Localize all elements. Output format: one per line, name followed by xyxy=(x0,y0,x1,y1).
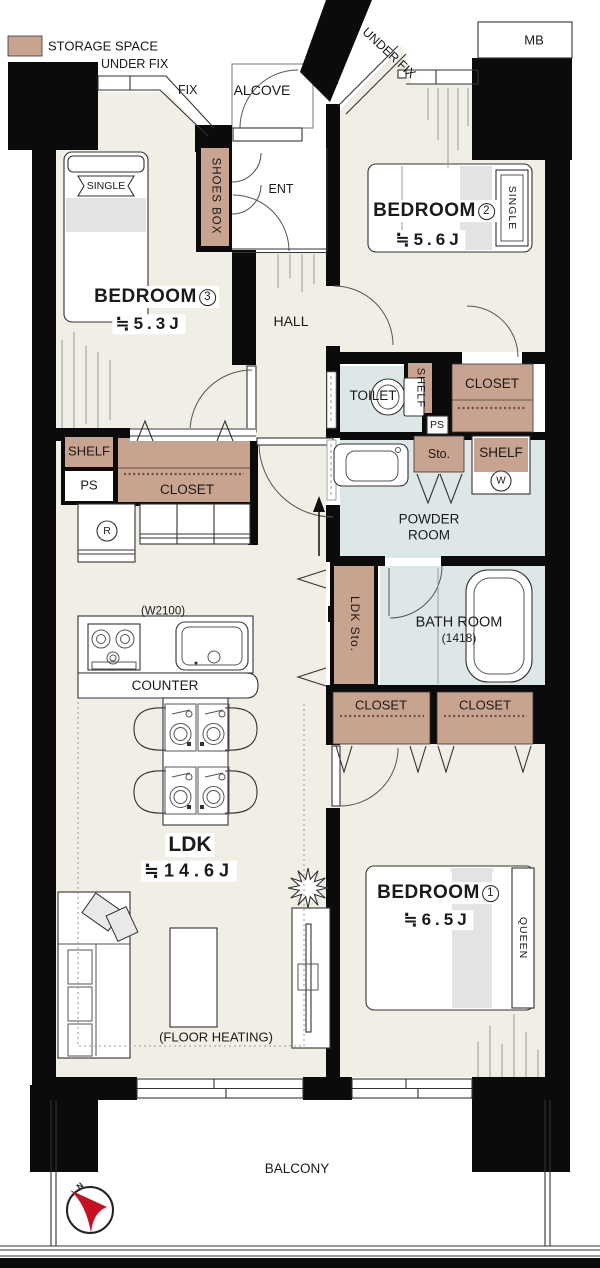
bed3-type-label: SINGLE xyxy=(87,180,126,192)
sto-label: Sto. xyxy=(428,447,450,461)
coffee-table-icon xyxy=(170,928,217,1027)
ps-left-label: PS xyxy=(80,479,97,494)
ldk-size: ≒14.6J xyxy=(141,861,237,882)
alcove-label: ALCOVE xyxy=(234,82,291,98)
ent-label: ENT xyxy=(269,182,294,196)
hall-ldk-door xyxy=(257,438,333,445)
counter-label: COUNTER xyxy=(132,678,199,694)
bedroom3-size: ≒5.3J xyxy=(112,314,185,334)
shoes-box-label: SHOES BOX xyxy=(208,158,221,235)
kitchen-width-label: (W2100) xyxy=(141,605,185,618)
balcony-label: BALCONY xyxy=(265,1161,330,1177)
closet-south-1-label: CLOSET xyxy=(355,699,407,714)
shelf-left-label: SHELF xyxy=(68,445,110,460)
front-door xyxy=(233,128,302,141)
legend-label: STORAGE SPACE xyxy=(48,39,158,54)
fix-label: FIX xyxy=(178,83,197,97)
toilet-label: TOILET xyxy=(349,388,396,404)
washer-label: W xyxy=(496,475,505,487)
toilet-shelf-label: SHELF xyxy=(414,368,427,408)
closet-bedroom2-area xyxy=(452,364,533,432)
floor-plan: STORAGE SPACE UNDER FIX FIX ALCOVE UNDER… xyxy=(0,0,600,1268)
bedroom2-size: ≒5.6J xyxy=(392,230,465,250)
legend-swatch xyxy=(8,36,42,56)
stove-icon xyxy=(88,624,140,670)
laundry-shelf-label: SHELF xyxy=(479,445,523,461)
ldk-name: LDK xyxy=(165,833,214,857)
hall-label: HALL xyxy=(273,313,308,329)
bedroom1-number: 1 xyxy=(482,885,499,902)
bed2-type-label: SINGLE xyxy=(506,186,518,231)
closet-bedroom2-label: CLOSET xyxy=(465,376,519,392)
bath-room-label: BATH ROOM xyxy=(416,615,503,632)
bedroom2-number: 2 xyxy=(478,203,495,220)
bath-size-label: (1418) xyxy=(442,632,477,646)
powder-room-label: POWDER ROOM xyxy=(387,511,471,542)
ldk-sto-label: LDK Sto. xyxy=(347,596,361,652)
bedroom3-door xyxy=(247,366,256,432)
under-fix-left-label: UNDER FIX xyxy=(101,57,168,71)
vanity-icon xyxy=(334,444,408,486)
floor-heating-label: (FLOOR HEATING) xyxy=(159,1031,273,1046)
bedroom3-number: 3 xyxy=(199,289,216,306)
closet-left-label: CLOSET xyxy=(160,482,214,498)
bed1-type-label: QUEEN xyxy=(517,917,529,959)
bedroom2-name: BEDROOM2 xyxy=(370,200,498,222)
toilet-ps-label: PS xyxy=(430,419,444,431)
bedroom1-name: BEDROOM1 xyxy=(374,882,502,904)
closet-south-2-label: CLOSET xyxy=(459,699,511,714)
tv-icon xyxy=(306,924,311,1032)
mb-label: MB xyxy=(524,34,544,49)
bedroom1-size: ≒6.5J xyxy=(400,910,473,930)
fridge-label: R xyxy=(103,525,111,537)
bedroom3-name: BEDROOM3 xyxy=(91,286,219,308)
